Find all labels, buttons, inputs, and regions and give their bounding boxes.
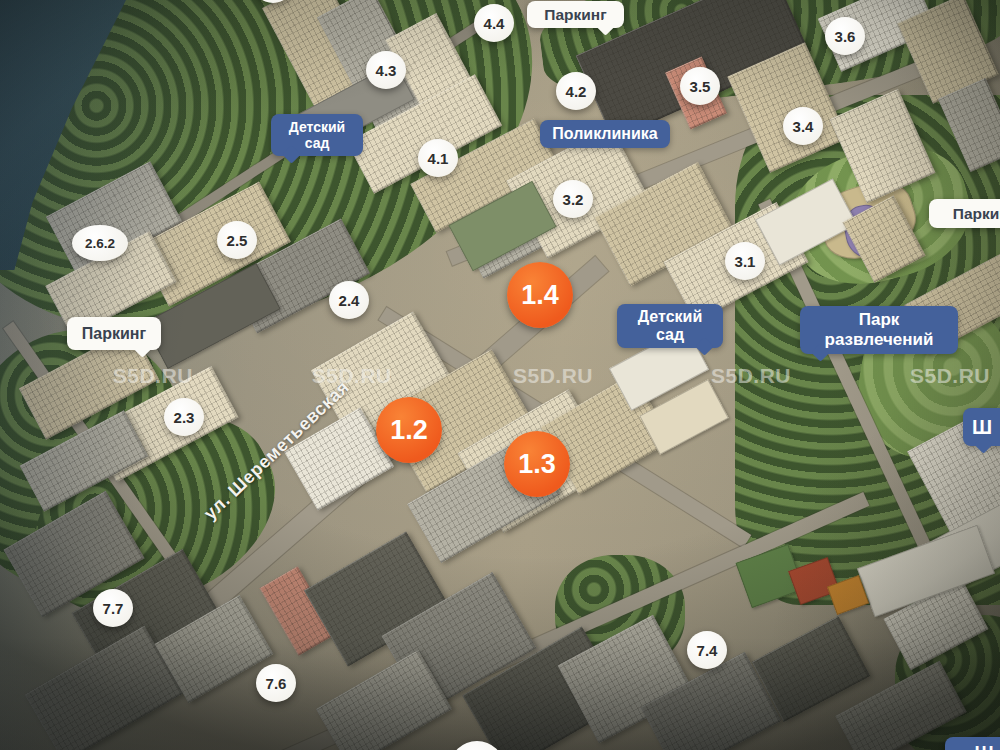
watermark: S5D.RU — [513, 364, 593, 388]
kindergarten-label-line2: сад — [305, 135, 330, 151]
marker-3.4[interactable]: 3.4 — [783, 107, 823, 145]
marker-3.2[interactable]: 3.2 — [553, 180, 593, 218]
school-label-right-clipped[interactable]: Ш — [963, 408, 1000, 446]
amusement-park-line2: развлечений — [825, 330, 934, 350]
marker-7.4[interactable]: 7.4 — [687, 631, 727, 669]
marker-4.4[interactable]: 4.4 — [474, 4, 514, 42]
parking-label-left[interactable]: Паркинг — [67, 317, 161, 350]
marker-2.6.2[interactable]: 2.6.2 — [72, 225, 128, 261]
watermark: S5D.RU — [113, 364, 193, 388]
kindergarten-label-line1: Детский — [289, 119, 345, 135]
marker-7.7[interactable]: 7.7 — [93, 589, 133, 627]
marker-3.1[interactable]: 3.1 — [725, 242, 765, 280]
marker-2.3[interactable]: 2.3 — [164, 398, 204, 436]
marker-3.5[interactable]: 3.5 — [680, 67, 720, 105]
amusement-park-label[interactable]: Парк развлечений — [800, 306, 958, 354]
kindergarten-label-top[interactable]: Детский сад — [271, 114, 363, 156]
marker-4.3[interactable]: 4.3 — [366, 51, 406, 89]
marker-1.3[interactable]: 1.3 — [504, 431, 570, 497]
kindergarten-label-center[interactable]: Детский сад — [617, 304, 723, 348]
polyclinic-label[interactable]: Поликлиника — [540, 120, 670, 148]
kindergarten-label-line1: Детский — [638, 308, 702, 326]
marker-1.4[interactable]: 1.4 — [507, 262, 573, 328]
marker-4.1[interactable]: 4.1 — [418, 139, 458, 177]
parking-label-right[interactable]: Паркинг — [929, 199, 1000, 228]
marker-2.4[interactable]: 2.4 — [329, 281, 369, 319]
parking-label-top[interactable]: Паркинг — [527, 1, 624, 28]
masterplan-map: S5D.RU S5D.RU S5D.RU S5D.RU S5D.RU ул. Ш… — [0, 0, 1000, 750]
marker-7.6[interactable]: 7.6 — [256, 664, 296, 702]
watermark: S5D.RU — [910, 364, 990, 388]
marker-3.6[interactable]: 3.6 — [825, 17, 865, 55]
marker-1.2[interactable]: 1.2 — [376, 397, 442, 463]
amusement-park-line1: Парк — [859, 310, 900, 330]
watermark: S5D.RU — [711, 364, 791, 388]
kindergarten-label-line2: сад — [656, 326, 684, 344]
school-label-bottom-clipped[interactable]: Ш — [945, 737, 1000, 750]
marker-2.5[interactable]: 2.5 — [217, 221, 257, 259]
marker-4.2[interactable]: 4.2 — [556, 72, 596, 110]
polyclinic-label-text: Поликлиника — [552, 125, 657, 143]
